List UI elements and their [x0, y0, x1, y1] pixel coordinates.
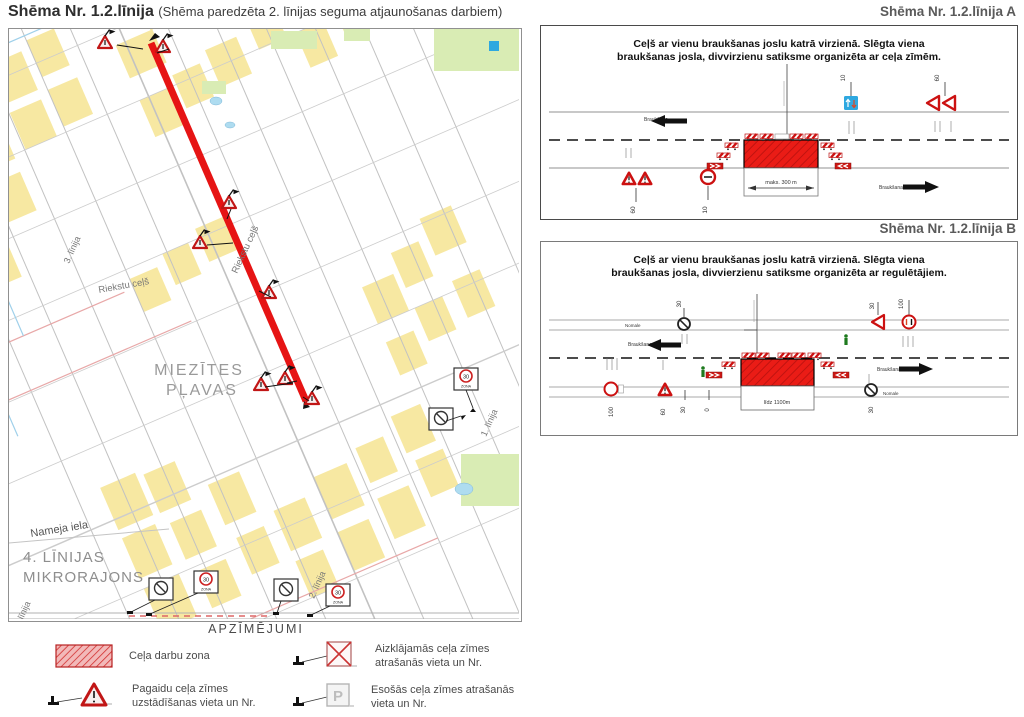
regulated-signs-left: 100 60 30 0 [605, 358, 712, 417]
priority-info-sign: 10 [841, 74, 858, 134]
distance-marker-right-10: 10 [841, 74, 847, 81]
dimension-label: maks. 300 m [765, 180, 797, 186]
schema-b-caption-1: Ceļš ar vienu braukšanas joslu katrā vir… [633, 254, 924, 266]
scheme-document-page: Shēma Nr. 1.2.līnija (Shēma paredzēta 2.… [0, 0, 1024, 717]
page-title-row: Shēma Nr. 1.2.līnija (Shēma paredzēta 2.… [8, 3, 502, 21]
map-label-3-linija: 3. līnija [62, 235, 83, 265]
direction-label-right: Braukšana [877, 367, 901, 373]
zone-sign-box-3: 30 ZONA [454, 368, 478, 412]
covered-sign-icon [293, 640, 359, 672]
page-title: Shēma Nr. 1.2.līnija [8, 3, 154, 20]
legend-label: Esošās ceļa zīmes atrašanās vieta un Nr. [371, 683, 521, 712]
distance-marker-100: 100 [609, 406, 615, 417]
map-label-area-2: PĻAVAS [166, 382, 238, 399]
traffic-arrow-right [899, 363, 933, 375]
distance-marker-60: 60 [630, 206, 637, 214]
map-panel: 30 ZONA 30 ZONA 30 ZONA [8, 28, 522, 622]
legend-item-existing-sign: P Esošās ceļa zīmes atrašanās vieta un N… [293, 682, 521, 712]
legend-item-covered-sign: Aizklājamās ceļa zīmes atrašanās vieta u… [293, 640, 525, 672]
work-zone-line [151, 43, 306, 401]
map-canvas: 30 ZONA 30 ZONA 30 ZONA [9, 29, 519, 619]
regulated-signs-right: 30 100 [870, 298, 916, 347]
distance-marker-bottom-right: 30 [869, 406, 875, 413]
traffic-arrow-left [647, 339, 681, 351]
roadside-label-bottom: Nomale [883, 391, 899, 396]
distance-marker-0: 0 [705, 408, 711, 412]
dimension-label: līdz 1100m [764, 400, 791, 406]
existing-sign-icon: P [293, 682, 355, 712]
no-stopping-sign-bottom: 30 [865, 374, 877, 413]
covered-sign-box-3 [429, 408, 466, 430]
oncoming-warning-signs: 60 [927, 74, 955, 132]
map-label-district-2: MIKRORAJONS [23, 569, 144, 586]
no-stopping-sign-top: 30 [677, 300, 690, 344]
legend-label: Aizklājamās ceļa zīmes atrašanās vieta u… [375, 642, 525, 671]
legend-label: Ceļa darbu zona [129, 649, 259, 663]
schema-a-caption-1: Ceļš ar vienu braukšanas joslu katrā vir… [633, 38, 924, 50]
legend-title: APZĪMĒJUMI [0, 622, 512, 636]
page-subtitle: (Shēma paredzēta 2. līnijas seguma atjau… [158, 4, 502, 19]
traffic-arrow-right [903, 181, 939, 193]
regulator-figure-bottom [701, 366, 705, 377]
prohibition-sign: 10 [701, 170, 715, 214]
schema-b-panel: Ceļš ar vienu braukšanas joslu katrā vir… [540, 241, 1018, 436]
map-label-4-linija: 4. līnija [12, 600, 33, 619]
work-zone-swatch-icon [55, 644, 113, 668]
distance-marker-30: 30 [681, 406, 687, 413]
zone-sign-text: ZONA [333, 601, 344, 605]
schema-a-header: Shēma Nr. 1.2.līnija A [880, 4, 1016, 19]
direction-label-right: Braukšana [879, 185, 903, 191]
warning-triangle-signs-left: 60 [623, 148, 651, 214]
zone-sign-text: ZONA [201, 588, 212, 592]
zone-sign-text: ZONA [461, 385, 472, 389]
dimension-box [741, 386, 814, 410]
schema-a-caption-2: braukšanas josla, divvirzienu satiksme o… [617, 51, 941, 63]
zone-sign-number: 30 [463, 374, 469, 380]
distance-marker-60: 60 [661, 408, 667, 415]
legend-item-work-zone: Ceļa darbu zona [55, 644, 259, 668]
schema-a-diagram: Ceļš ar vienu braukšanas joslu katrā vir… [541, 26, 1017, 219]
zone-sign-number: 30 [335, 590, 341, 596]
map-label-district-1: 4. LĪNIJAS [23, 549, 105, 566]
schema-b-diagram: Ceļš ar vienu braukšanas joslu katrā vir… [541, 242, 1017, 435]
schema-a-panel: Ceļš ar vienu braukšanas joslu katrā vir… [540, 25, 1018, 220]
schema-b-header: Shēma Nr. 1.2.līnija B [879, 221, 1016, 236]
temporary-sign-icon [48, 680, 116, 712]
distance-marker-top-right-30: 30 [870, 302, 876, 309]
schema-b-caption-2: braukšanas josla, divvierzienu satiksme … [611, 267, 947, 279]
zone-sign-number: 30 [203, 577, 209, 583]
distance-marker-10: 10 [702, 206, 709, 214]
map-blue-marker [489, 41, 499, 51]
legend-label: Pagaidu ceļa zīmes uzstādīšanas vieta un… [132, 682, 282, 711]
distance-marker-top-right-100: 100 [899, 298, 905, 309]
distance-marker-right-60: 60 [935, 74, 941, 81]
regulator-figure-top [844, 334, 848, 345]
work-zone-area [744, 140, 818, 168]
work-zone-area [741, 359, 814, 386]
map-label-area-1: MIEZĪTES [154, 361, 244, 379]
parking-glyph: P [333, 688, 343, 705]
distance-marker-top-left: 30 [677, 300, 683, 307]
roadside-label-top: Nomale [625, 323, 641, 328]
legend-item-temporary-sign: Pagaidu ceļa zīmes uzstādīšanas vieta un… [48, 680, 282, 712]
